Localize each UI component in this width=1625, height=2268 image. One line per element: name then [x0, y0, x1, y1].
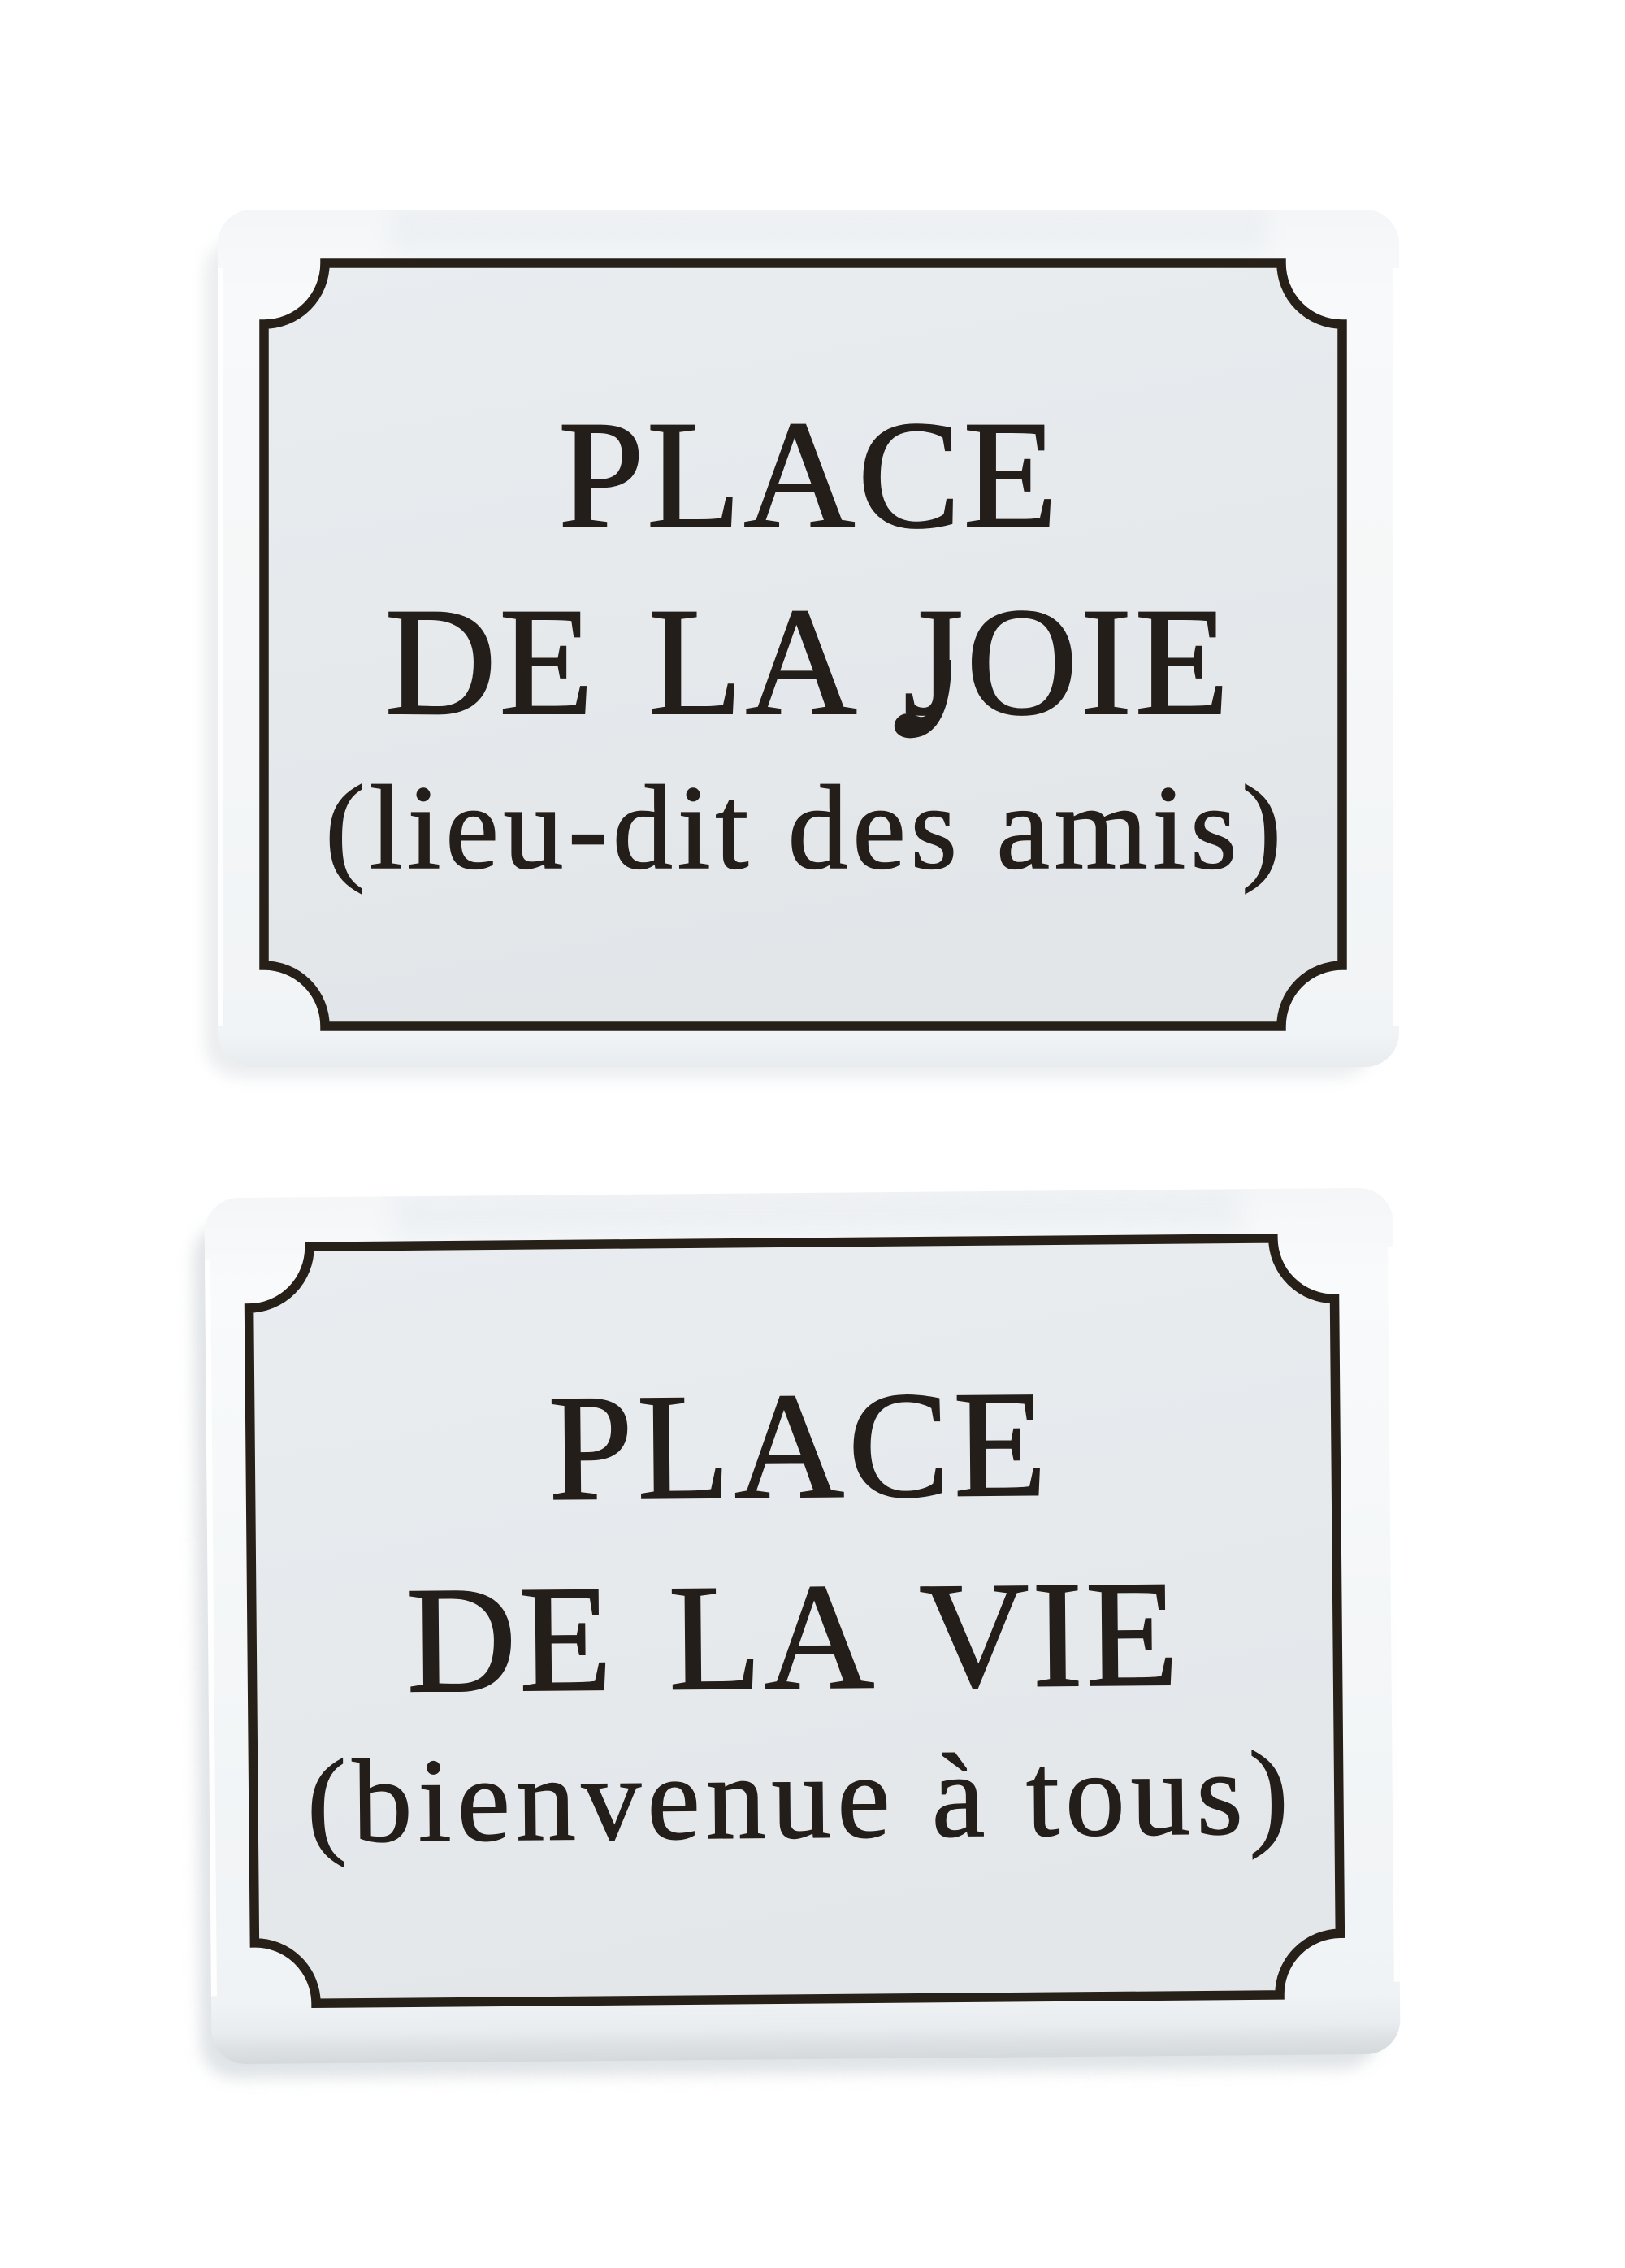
svg-text:(lieu-dit des amis): (lieu-dit des amis)	[325, 761, 1286, 895]
svg-text:(bienvenue à tous): (bienvenue à tous)	[306, 1727, 1295, 1868]
svg-text:DE LA VIE: DE LA VIE	[406, 1550, 1182, 1724]
svg-text:PLACE: PLACE	[548, 1359, 1051, 1532]
svg-text:PLACE: PLACE	[558, 390, 1060, 561]
svg-text:DE LA JOIE: DE LA JOIE	[385, 577, 1233, 748]
